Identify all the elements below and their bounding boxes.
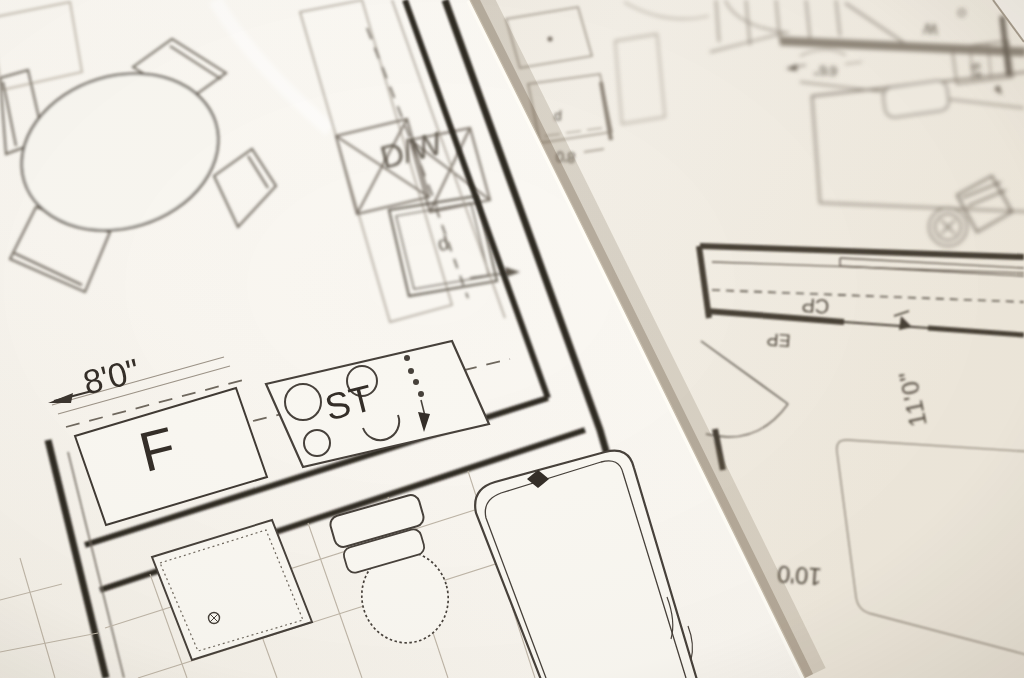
floor-plan-scene: 6'6" W O 4'8 p 8'0 <box>0 0 1024 678</box>
blueprint-photo: 6'6" W O 4'8 p 8'0 <box>0 0 1024 678</box>
photo-vignette <box>0 0 1024 678</box>
